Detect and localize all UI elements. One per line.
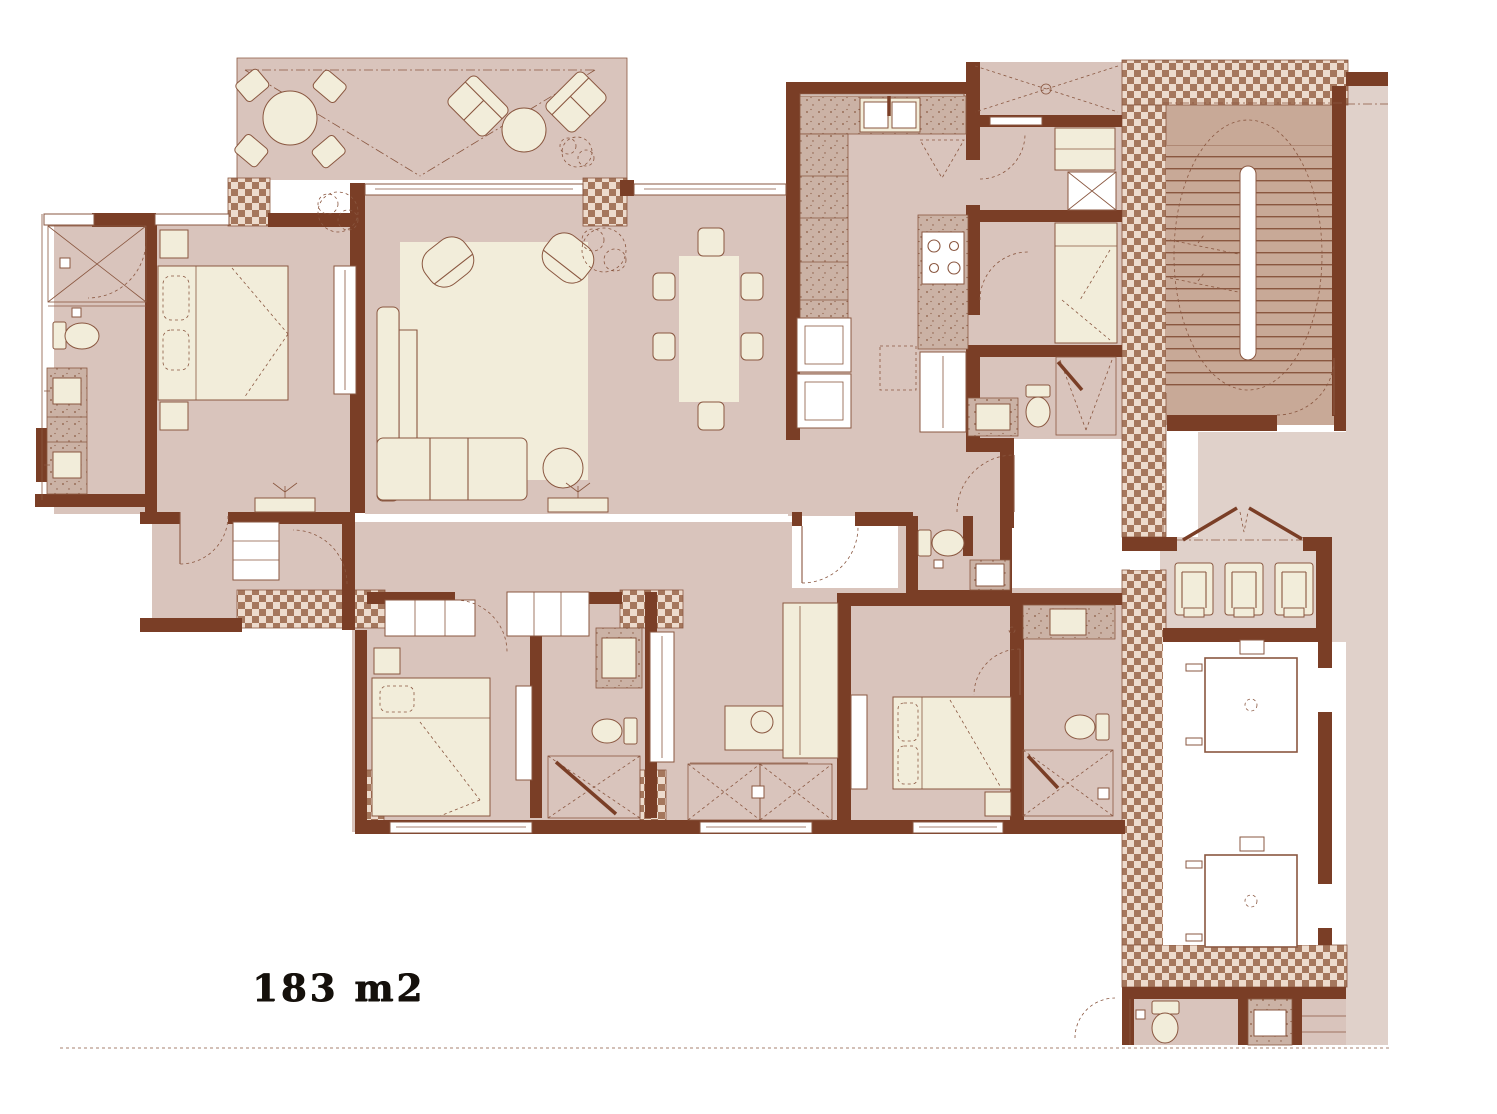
elevators [1163, 640, 1318, 947]
nightstand [985, 792, 1011, 816]
sink-icon [976, 404, 1010, 430]
sink-icon [976, 564, 1004, 586]
toilet-icon [1026, 385, 1050, 427]
sink-icon [602, 638, 636, 678]
door-swing [802, 527, 858, 583]
closet [516, 686, 532, 780]
dining-chair [741, 333, 763, 360]
dining-table [679, 256, 739, 402]
sink-icon [1254, 1010, 1286, 1036]
toilet-icon [1065, 714, 1109, 740]
stove-icon [922, 232, 964, 284]
bed [158, 266, 288, 400]
closet [507, 592, 589, 636]
sink-icon [53, 378, 81, 404]
sink-icon [1050, 609, 1086, 635]
dining-chair [698, 402, 724, 430]
area-label: 183 m2 [252, 966, 425, 1010]
dining-chair [698, 228, 724, 256]
staircase [1166, 120, 1334, 415]
cabinet [783, 603, 838, 758]
dining-chair [653, 333, 675, 360]
closet [233, 522, 279, 580]
closet [851, 695, 867, 789]
lobby-armchair [1275, 563, 1313, 617]
dining-chair [653, 273, 675, 300]
bed [372, 678, 490, 816]
round-table [502, 108, 546, 152]
plant-shelf [255, 498, 315, 512]
plant-shelf [548, 498, 608, 512]
nightstand [374, 648, 400, 674]
round-table [263, 91, 317, 145]
hall-corridor-floor [352, 522, 792, 590]
stair-handrail [1240, 166, 1256, 360]
lobby-armchair [1225, 563, 1263, 617]
floor-plan-drawing [0, 0, 1497, 1114]
desk-chair [751, 711, 773, 733]
nightstand [160, 402, 188, 430]
drying-balcony-floor [966, 62, 1122, 117]
common-corridor-floor [1346, 86, 1388, 1045]
nightstand [160, 230, 188, 258]
toilet-icon [592, 718, 637, 744]
floor-plan: 183 m2 [0, 0, 1497, 1114]
sink-icon [53, 452, 81, 478]
side-table [543, 448, 583, 488]
dining-chair [741, 273, 763, 300]
lobby-armchair [1175, 563, 1213, 617]
bed [1055, 223, 1117, 343]
counter [800, 134, 848, 318]
wardrobe [385, 600, 475, 636]
